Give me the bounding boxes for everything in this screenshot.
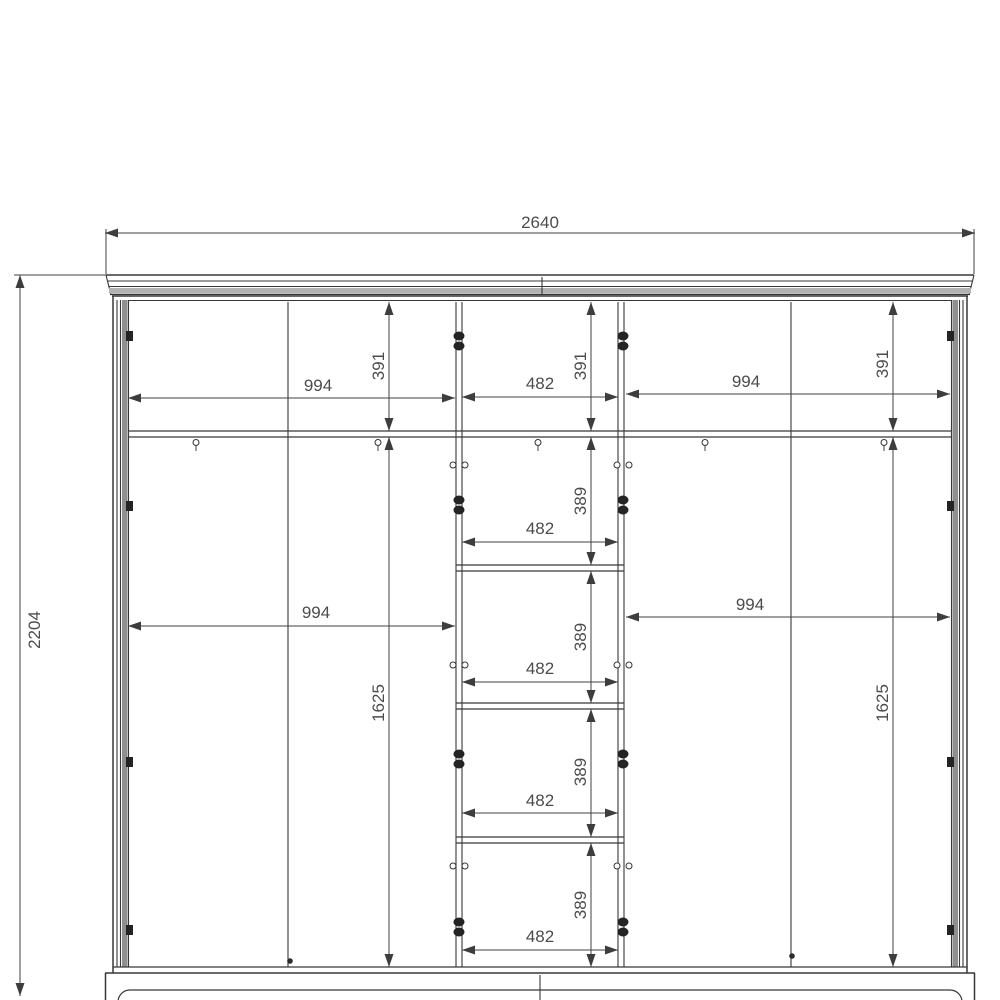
dim-label-center-width-4: 482 xyxy=(526,791,554,810)
dim-label-center-width-2: 482 xyxy=(526,519,554,538)
dim-label-overall-height: 2204 xyxy=(25,611,44,649)
dim-label-left-width-top: 994 xyxy=(304,376,332,395)
dim-label-center-compartment-1: 389 xyxy=(571,487,590,515)
dim-label-right-width-top: 994 xyxy=(732,372,760,391)
hinge-mark xyxy=(126,925,133,935)
dim-label-overall-width: 2640 xyxy=(521,213,559,232)
cornice xyxy=(106,275,974,295)
dim-label-top-compartment-right: 391 xyxy=(873,350,892,378)
full-width-top-shelf xyxy=(128,431,952,437)
right-door-gap-lines xyxy=(960,300,964,967)
width-dim-extensions xyxy=(106,229,974,274)
hinge-mark xyxy=(947,501,954,511)
extension-lines xyxy=(14,229,974,275)
shelves xyxy=(128,431,952,843)
dim-label-right-width-mid: 994 xyxy=(736,595,764,614)
center-wall-hinges xyxy=(454,332,629,937)
dim-label-door-height-left: 1625 xyxy=(369,684,388,722)
partitions xyxy=(288,302,791,967)
hinge-mark xyxy=(947,925,954,935)
technical-drawing-canvas: 2640 2204 994 482 994 994 994 482 482 48… xyxy=(0,0,1000,1000)
hinge-marks xyxy=(126,331,954,964)
center-column-left-wall xyxy=(456,302,462,967)
hinge-mark xyxy=(947,757,954,767)
rail-brackets xyxy=(193,440,887,452)
wardrobe-elevation-drawing: 2640 2204 994 482 994 994 994 482 482 48… xyxy=(0,0,1000,1000)
center-shelf-2 xyxy=(456,703,624,709)
center-shelf-1 xyxy=(456,565,624,571)
door-stop-mark xyxy=(287,958,293,964)
hinge-mark xyxy=(947,331,954,341)
dimension-lines xyxy=(20,233,975,996)
dimension-labels: 2640 2204 994 482 994 994 994 482 482 48… xyxy=(25,213,892,946)
dim-label-top-compartment-left: 391 xyxy=(369,352,388,380)
dim-label-center-compartment-2: 389 xyxy=(571,623,590,651)
hinge-mark xyxy=(126,757,133,767)
right-door-edge-shade xyxy=(953,300,959,967)
dim-label-door-height-right: 1625 xyxy=(873,684,892,722)
dim-label-top-compartment-center: 391 xyxy=(571,352,590,380)
dim-label-center-width-top: 482 xyxy=(526,374,554,393)
dim-label-center-width-5: 482 xyxy=(526,927,554,946)
plinth xyxy=(105,973,975,1000)
cornice-molding-lines xyxy=(107,281,973,287)
left-door-gap-lines xyxy=(117,300,121,967)
dim-label-left-width-mid: 994 xyxy=(302,603,330,622)
dim-label-center-compartment-4: 389 xyxy=(571,891,590,919)
hinge-mark xyxy=(126,501,133,511)
door-stop-mark xyxy=(789,953,795,959)
left-door-edge-shade xyxy=(122,300,128,967)
center-shelf-3 xyxy=(456,837,624,843)
dim-label-center-width-3: 482 xyxy=(526,659,554,678)
cornice-shade-band xyxy=(109,288,971,294)
hinge-mark xyxy=(126,331,133,341)
dim-label-center-compartment-3: 389 xyxy=(571,758,590,786)
